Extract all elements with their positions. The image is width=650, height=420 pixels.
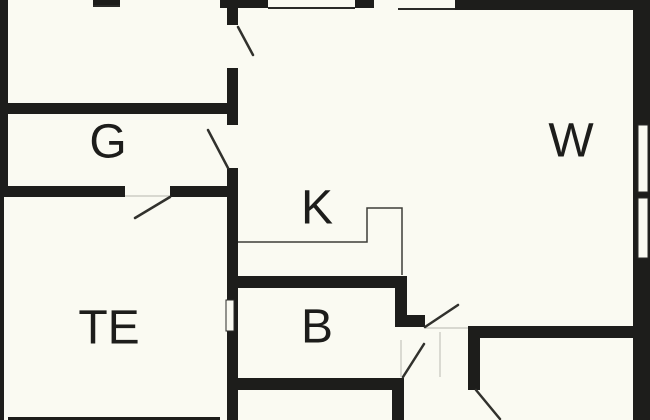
wall-central-upper [227,7,238,25]
room-label-g: G [89,116,126,169]
wall-central-mid [227,68,238,125]
wall-hall-top [468,326,650,338]
floor-plan: GWKTEB [0,0,650,420]
wall-b-right-stub-h [395,315,425,327]
room-label-b: B [301,301,333,354]
wall-left-lower [0,192,4,420]
wall-hall-left [468,338,480,390]
wall-central-lower [227,168,238,420]
window-right-lower [638,198,648,258]
wall-top-a [220,0,268,8]
room-label-w: W [548,115,594,168]
wall-g-divider [4,103,238,114]
wall-top-entry-mark [93,0,120,5]
room-label-k: K [301,182,333,235]
wall-kb-divider [238,276,407,288]
room-label-te: TE [78,302,139,355]
wall-left-upper [0,0,8,197]
wall-b-bottom [238,378,404,390]
wall-top-b [355,0,374,8]
wall-bottommid-right [392,378,404,420]
wall-te-divider-left [0,186,125,197]
wall-te-divider-right [170,186,238,197]
floor-plan-drawing: GWKTEB [0,0,650,420]
window-central-inset [226,300,234,331]
window-right-upper [638,125,648,192]
wall-top-c [455,0,650,10]
